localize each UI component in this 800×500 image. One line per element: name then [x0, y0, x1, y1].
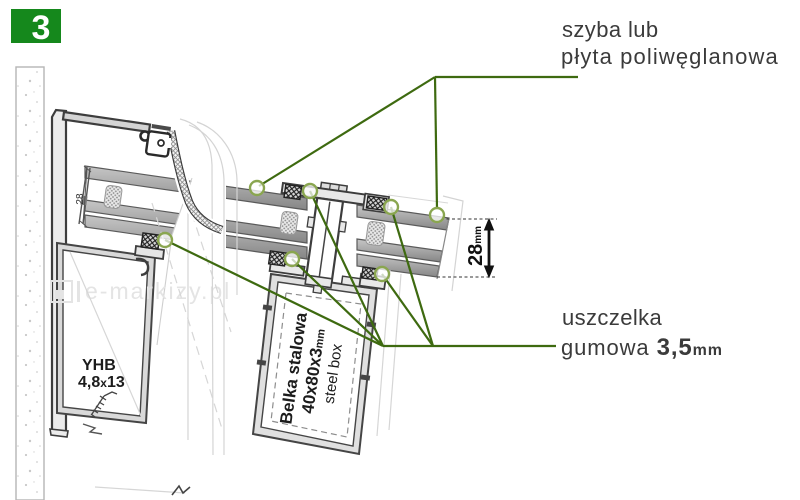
svg-text:YHB: YHB	[82, 357, 116, 374]
svg-text:płyta poliwęglanowa: płyta poliwęglanowa	[561, 44, 779, 69]
svg-text:szyba lub: szyba lub	[562, 17, 659, 42]
svg-text:28: 28	[75, 193, 86, 205]
svg-text:e-markizy.pl: e-markizy.pl	[85, 278, 231, 304]
svg-text:uszczelka: uszczelka	[562, 305, 663, 330]
svg-text:3: 3	[32, 9, 51, 47]
svg-text:4,8x13: 4,8x13	[78, 374, 125, 391]
